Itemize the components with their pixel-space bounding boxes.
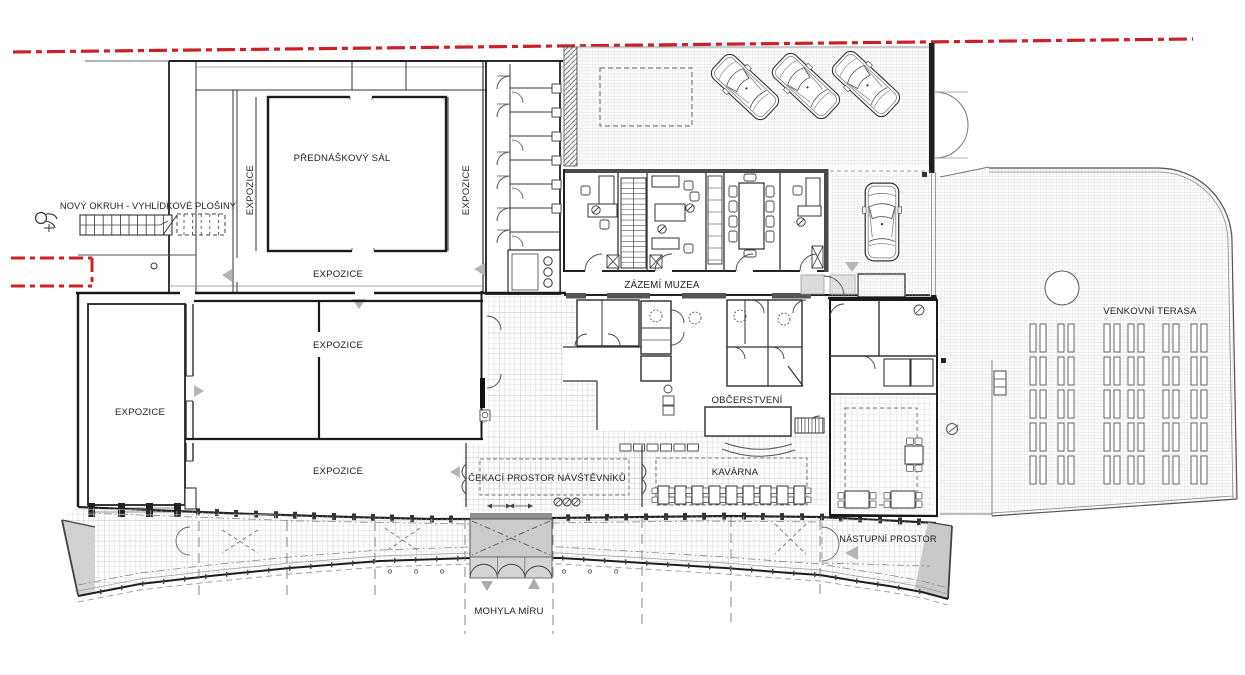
svg-text:ČEKACÍ PROSTOR NÁVŠTĚVNÍKŮ: ČEKACÍ PROSTOR NÁVŠTĚVNÍKŮ xyxy=(468,472,626,483)
svg-text:KAVÁRNA: KAVÁRNA xyxy=(712,467,759,478)
svg-text:ZÁZEMÍ MUZEA: ZÁZEMÍ MUZEA xyxy=(624,280,700,291)
svg-text:EXPOZICE: EXPOZICE xyxy=(461,165,472,215)
svg-text:VENKOVNÍ TERASA: VENKOVNÍ TERASA xyxy=(1103,306,1197,317)
svg-text:EXPOZICE: EXPOZICE xyxy=(245,165,256,215)
svg-text:EXPOZICE: EXPOZICE xyxy=(115,407,165,418)
svg-text:MOHYLA MÍRU: MOHYLA MÍRU xyxy=(474,606,543,617)
svg-text:NÁSTUPNÍ PROSTOR: NÁSTUPNÍ PROSTOR xyxy=(839,534,937,544)
svg-text:EXPOZICE: EXPOZICE xyxy=(313,466,363,477)
svg-text:EXPOZICE: EXPOZICE xyxy=(313,269,363,280)
svg-text:NOVÝ OKRUH - VYHLÍDKOVÉ PLOŠIN: NOVÝ OKRUH - VYHLÍDKOVÉ PLOŠINY xyxy=(60,201,236,211)
svg-text:OBČERSTVENÍ: OBČERSTVENÍ xyxy=(712,395,783,406)
svg-text:PŘEDNÁŠKOVÝ SÁL: PŘEDNÁŠKOVÝ SÁL xyxy=(294,153,391,164)
svg-text:EXPOZICE: EXPOZICE xyxy=(313,340,363,351)
